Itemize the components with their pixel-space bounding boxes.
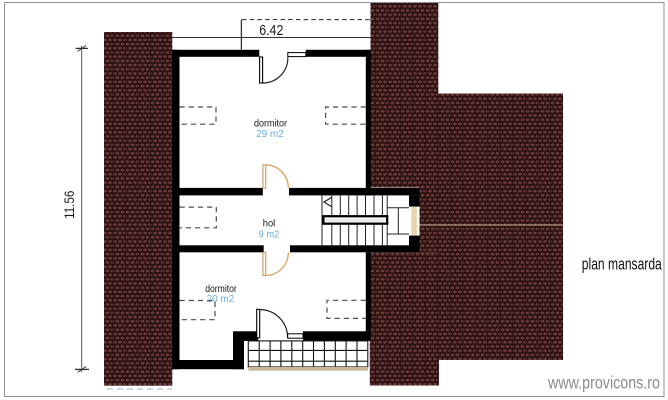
- svg-text:20 m2: 20 m2: [207, 293, 235, 305]
- svg-text:plan mansarda: plan mansarda: [582, 255, 663, 273]
- svg-text:11.56: 11.56: [61, 191, 77, 219]
- svg-text:29 m2: 29 m2: [256, 128, 284, 140]
- svg-text:www.provicons.ro: www.provicons.ro: [547, 373, 660, 393]
- svg-text:6.42: 6.42: [259, 23, 283, 39]
- svg-text:9 m2: 9 m2: [259, 228, 280, 240]
